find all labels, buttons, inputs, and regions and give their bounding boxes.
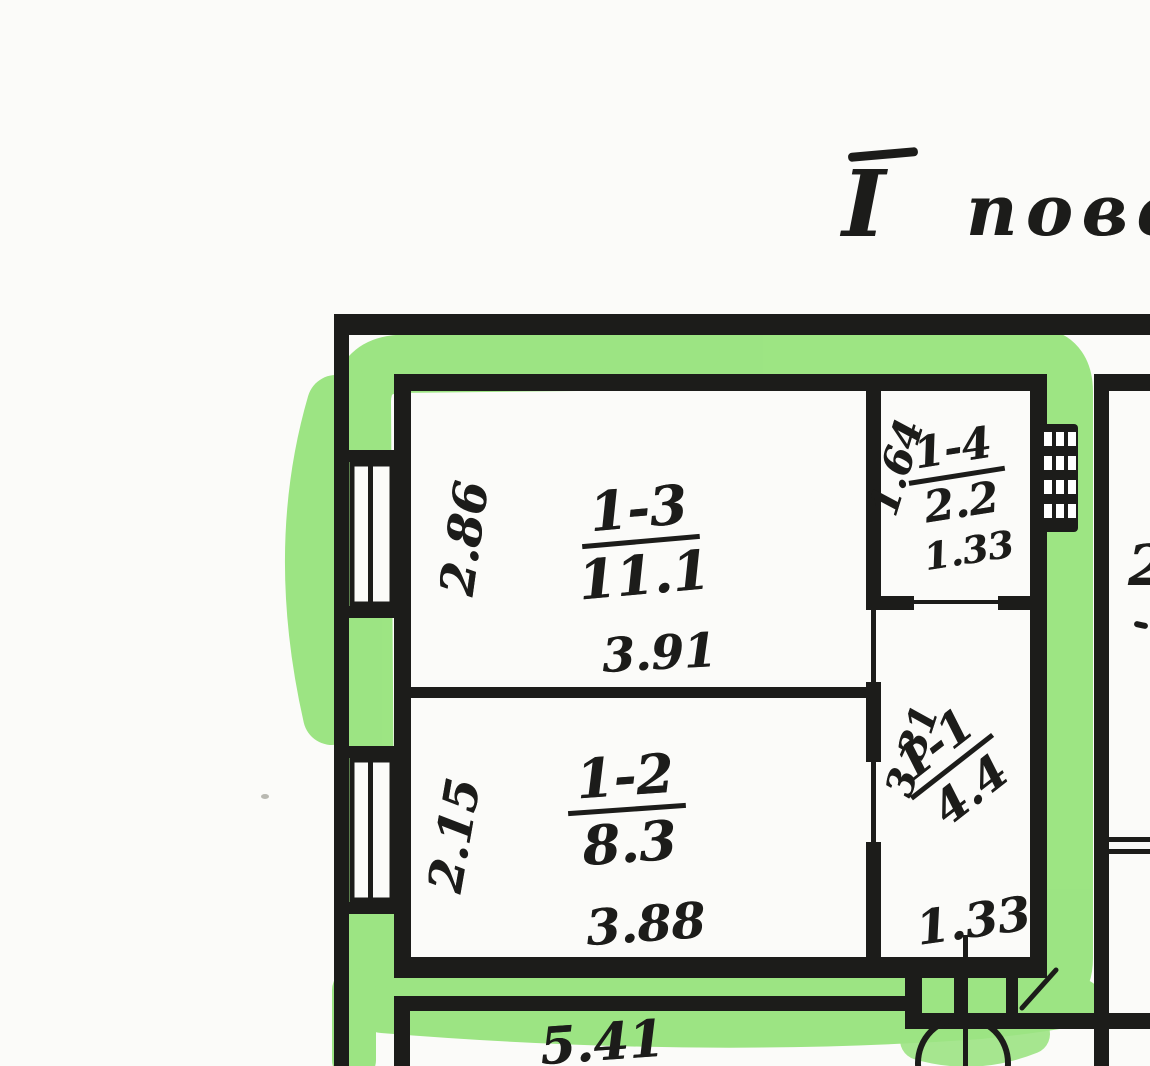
wall-right-unit-top — [1094, 374, 1150, 391]
room-label-1-2: 1-2 8.3 — [548, 743, 706, 877]
room-1-3-area: 11.1 — [567, 540, 721, 610]
window2-mullion — [368, 760, 373, 900]
window2-top-sill — [348, 746, 394, 758]
wall-left-outer — [334, 314, 349, 1066]
wall-corridor-seg2 — [866, 682, 881, 762]
window1-bottom-sill — [348, 606, 394, 618]
door-threshold-14 — [914, 600, 998, 604]
right-edge-partial-digit: 2 — [1128, 538, 1150, 594]
dim-1-2-width: 3.88 — [584, 896, 706, 953]
room-label-1-3: 1-3 11.1 — [561, 474, 721, 610]
room-1-2-area: 8.3 — [553, 809, 707, 876]
wall-lower-left — [394, 996, 410, 1066]
dim-lower-room-width: 5.41 — [538, 1014, 665, 1066]
floor-title-word: пове — [966, 176, 1150, 246]
wall-right-divider-a — [1109, 837, 1150, 842]
vestibule-post-b — [1006, 974, 1018, 1016]
window1-top-sill — [348, 450, 394, 462]
door-threshold-13 — [871, 600, 876, 682]
room-1-2-number: 1-2 — [564, 744, 686, 816]
walls — [334, 314, 1150, 1066]
wall-room-top — [394, 374, 1046, 391]
dim-1-1-width: 1.33 — [913, 890, 1033, 952]
wall-vestibule-left — [905, 957, 922, 1029]
floor-title-numeral: I — [842, 158, 885, 250]
wall-top-outer — [334, 314, 1150, 335]
windows — [352, 464, 392, 900]
room-1-3-number: 1-3 — [577, 475, 700, 549]
window1-mullion — [368, 464, 373, 604]
vent-block — [1038, 424, 1078, 532]
wall-divider-13-12 — [411, 687, 867, 698]
window2-bottom-sill — [348, 902, 394, 914]
dim-1-3-width: 3.91 — [601, 627, 718, 680]
wall-room-left — [394, 374, 411, 978]
wall-right-divider-b — [1109, 849, 1150, 854]
floor-plan-scan: I пове 1-3 11.1 3.91 2.86 1-2 8.3 3.88 2… — [0, 0, 1150, 1066]
wall-unit-bottom — [394, 957, 1047, 978]
scan-speck — [261, 794, 269, 799]
entry-axis-line — [963, 935, 968, 1066]
wall-right-unit-left — [1094, 374, 1109, 1066]
wall-14-bottom-a — [866, 596, 914, 610]
